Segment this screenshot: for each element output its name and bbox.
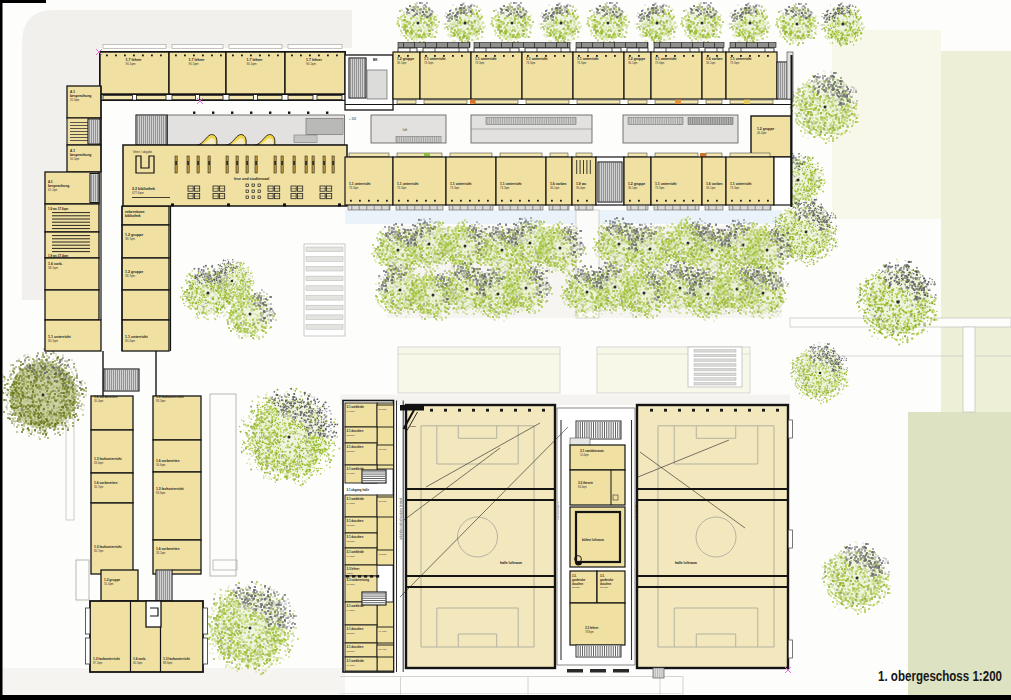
- svg-text:83.3qm: 83.3qm: [156, 399, 166, 403]
- svg-text:73.3qm: 73.3qm: [655, 186, 665, 190]
- svg-text:73.3qm: 73.3qm: [450, 186, 460, 190]
- svg-text:10.4qm: 10.4qm: [580, 453, 589, 457]
- svg-text:12.5qm: 12.5qm: [347, 540, 355, 543]
- svg-text:garderobe: garderobe: [572, 578, 586, 582]
- svg-text:14.8qm: 14.8qm: [347, 555, 355, 558]
- svg-text:90.1qm: 90.1qm: [189, 62, 200, 66]
- svg-text:36.1qm: 36.1qm: [397, 61, 407, 65]
- svg-text:83.6qm: 83.6qm: [94, 461, 104, 465]
- svg-text:83.6qm: 83.6qm: [156, 491, 166, 495]
- svg-text:14.8qm: 14.8qm: [347, 410, 355, 413]
- svg-text:73.3qm: 73.3qm: [500, 186, 510, 190]
- svg-text:3.1 abgang halle: 3.1 abgang halle: [347, 488, 370, 492]
- svg-text:1.7 lehrer: 1.7 lehrer: [126, 58, 143, 62]
- svg-text:garderobe: garderobe: [600, 578, 614, 582]
- svg-text:90.1qm: 90.1qm: [247, 62, 258, 66]
- svg-text:12.5qm: 12.5qm: [347, 632, 355, 635]
- svg-text:halle luftraum: halle luftraum: [500, 561, 522, 565]
- svg-text:13.2qm: 13.2qm: [379, 553, 387, 556]
- svg-text:38.1qm: 38.1qm: [48, 266, 59, 270]
- svg-text:73.3qm: 73.3qm: [526, 61, 536, 65]
- svg-text:36.1qm: 36.1qm: [706, 186, 716, 190]
- svg-text:36.4qm: 36.4qm: [576, 186, 586, 190]
- svg-text:bibliothek: bibliothek: [125, 214, 141, 218]
- svg-text:31.4qm: 31.4qm: [104, 582, 114, 586]
- svg-text:3.1 umkleide: 3.1 umkleide: [347, 659, 365, 663]
- svg-text:80.2qm: 80.2qm: [125, 339, 136, 343]
- svg-text:31.6qm: 31.6qm: [70, 98, 80, 102]
- svg-text:lese und studiensaal: lese und studiensaal: [234, 177, 269, 181]
- svg-text:nebenräume: nebenräume: [125, 210, 145, 214]
- svg-text:3.1 umkleide: 3.1 umkleide: [347, 497, 365, 501]
- svg-text:+ 343: + 343: [349, 117, 357, 121]
- svg-text:12qm: 12qm: [347, 572, 353, 575]
- svg-text:13.8qm: 13.8qm: [379, 448, 387, 451]
- svg-text:bühne luftraum: bühne luftraum: [582, 538, 604, 542]
- svg-text:3.3 lehrer: 3.3 lehrer: [585, 626, 599, 630]
- svg-text:aufenthalt galerie: aufenthalt galerie: [557, 501, 560, 520]
- svg-text:halle luftraum: halle luftraum: [675, 561, 697, 565]
- svg-text:477.6qm: 477.6qm: [132, 191, 144, 195]
- svg-text:3.1 duschen: 3.1 duschen: [347, 535, 364, 539]
- svg-text:regie: regie: [410, 425, 417, 428]
- svg-text:61.2qm: 61.2qm: [48, 188, 58, 192]
- svg-text:3.2 theorie: 3.2 theorie: [578, 481, 593, 485]
- svg-text:73.3qm: 73.3qm: [349, 186, 359, 190]
- svg-text:13.6qm: 13.6qm: [379, 500, 387, 503]
- svg-text:14.8qm: 14.8qm: [347, 664, 355, 667]
- svg-text:73.3qm: 73.3qm: [424, 61, 434, 65]
- svg-text:38.7qm: 38.7qm: [125, 237, 136, 241]
- svg-text:14.7qm: 14.7qm: [347, 472, 355, 475]
- svg-text:80.7qm: 80.7qm: [94, 549, 104, 553]
- svg-text:90.1qm: 90.1qm: [306, 62, 317, 66]
- svg-text:73.3qm: 73.3qm: [577, 61, 587, 65]
- svg-text:28.2qm: 28.2qm: [156, 551, 166, 555]
- svg-text:1.7 lehrer: 1.7 lehrer: [247, 58, 264, 62]
- svg-text:73.3qm: 73.3qm: [475, 61, 485, 65]
- svg-text:73.3qm: 73.3qm: [397, 186, 407, 190]
- svg-text:BK: BK: [373, 58, 378, 62]
- svg-text:1.7 lehrer: 1.7 lehrer: [306, 58, 323, 62]
- svg-text:30.8qm: 30.8qm: [347, 583, 355, 586]
- svg-text:3.1 duschen: 3.1 duschen: [347, 519, 364, 523]
- svg-text:80.1qm: 80.1qm: [48, 339, 59, 343]
- svg-text:78.8qm: 78.8qm: [585, 630, 594, 634]
- svg-text:36.1qm: 36.1qm: [628, 186, 638, 190]
- svg-text:88.8qm: 88.8qm: [163, 661, 173, 665]
- svg-text:73.3qm: 73.3qm: [730, 61, 740, 65]
- svg-text:15.3qm: 15.3qm: [379, 408, 387, 411]
- svg-text:3.1 umkleide: 3.1 umkleide: [347, 405, 365, 409]
- svg-text:duschen: duschen: [600, 582, 611, 586]
- svg-text:3.3.: 3.3.: [600, 574, 605, 578]
- svg-text:12.5qm: 12.5qm: [347, 450, 355, 453]
- svg-text:1.7 lehrer: 1.7 lehrer: [189, 58, 206, 62]
- svg-text:3.1 sanitätsraum: 3.1 sanitätsraum: [580, 449, 604, 453]
- svg-text:1. obergeschoss 1:200: 1. obergeschoss 1:200: [878, 667, 1002, 684]
- svg-text:1.9 wc 37.6qm: 1.9 wc 37.6qm: [48, 207, 69, 211]
- svg-text:3.1 duschen: 3.1 duschen: [347, 627, 364, 631]
- svg-text:23.3qm: 23.3qm: [572, 586, 580, 589]
- svg-text:14.8qm: 14.8qm: [347, 502, 355, 505]
- svg-text:30.7qm: 30.7qm: [94, 485, 104, 489]
- svg-text:1.9 wc 37.4qm: 1.9 wc 37.4qm: [48, 254, 69, 258]
- svg-text:14.8qm: 14.8qm: [379, 630, 387, 633]
- svg-text:lehen / abgabe: lehen / abgabe: [133, 150, 153, 154]
- svg-text:36.1qm: 36.1qm: [706, 61, 716, 65]
- svg-text:30.6qm: 30.6qm: [156, 463, 166, 467]
- svg-text:3.1 duschen: 3.1 duschen: [347, 445, 364, 449]
- svg-text:36.1qm: 36.1qm: [550, 186, 560, 190]
- svg-text:87.3qm: 87.3qm: [93, 661, 103, 665]
- svg-text:44.4qm: 44.4qm: [757, 131, 767, 135]
- svg-text:3.3.: 3.3.: [572, 574, 577, 578]
- svg-text:90.1qm: 90.1qm: [126, 62, 137, 66]
- svg-text:12.5qm: 12.5qm: [347, 650, 355, 653]
- svg-text:30.3qm: 30.3qm: [133, 661, 143, 665]
- svg-text:duschen: duschen: [572, 582, 583, 586]
- svg-text:3.3 vorbereitung: 3.3 vorbereitung: [347, 578, 370, 582]
- svg-text:3.1 duschen: 3.1 duschen: [347, 429, 364, 433]
- svg-text:73.3qm: 73.3qm: [730, 186, 740, 190]
- svg-text:4.1: 4.1: [48, 180, 53, 184]
- svg-text:2.2 bibliothek: 2.2 bibliothek: [132, 187, 155, 191]
- svg-text:3.1 duschen: 3.1 duschen: [347, 645, 364, 649]
- svg-text:14.8qm: 14.8qm: [347, 609, 355, 612]
- svg-text:23.7qm: 23.7qm: [600, 586, 608, 589]
- svg-text:38.7qm: 38.7qm: [125, 274, 136, 278]
- svg-text:umkleiden und nebenräume besta: umkleiden und nebenräume bestand: [399, 497, 403, 540]
- svg-text:12.5qm: 12.5qm: [347, 434, 355, 437]
- svg-text:15.4qm: 15.4qm: [379, 648, 387, 651]
- svg-text:luft: luft: [403, 128, 407, 132]
- svg-text:12.5qm: 12.5qm: [347, 524, 355, 527]
- svg-text:73.3qm: 73.3qm: [655, 61, 665, 65]
- svg-text:aufenthalt galerie: aufenthalt galerie: [634, 501, 637, 520]
- svg-text:50.5qm: 50.5qm: [70, 157, 80, 161]
- svg-text:30.4qm: 30.4qm: [94, 399, 104, 403]
- svg-text:3.1 umkleide: 3.1 umkleide: [347, 550, 365, 554]
- svg-text:3.3 lehrer: 3.3 lehrer: [347, 567, 361, 571]
- svg-text:36.1qm: 36.1qm: [628, 61, 638, 65]
- svg-text:80.3qm: 80.3qm: [578, 485, 587, 489]
